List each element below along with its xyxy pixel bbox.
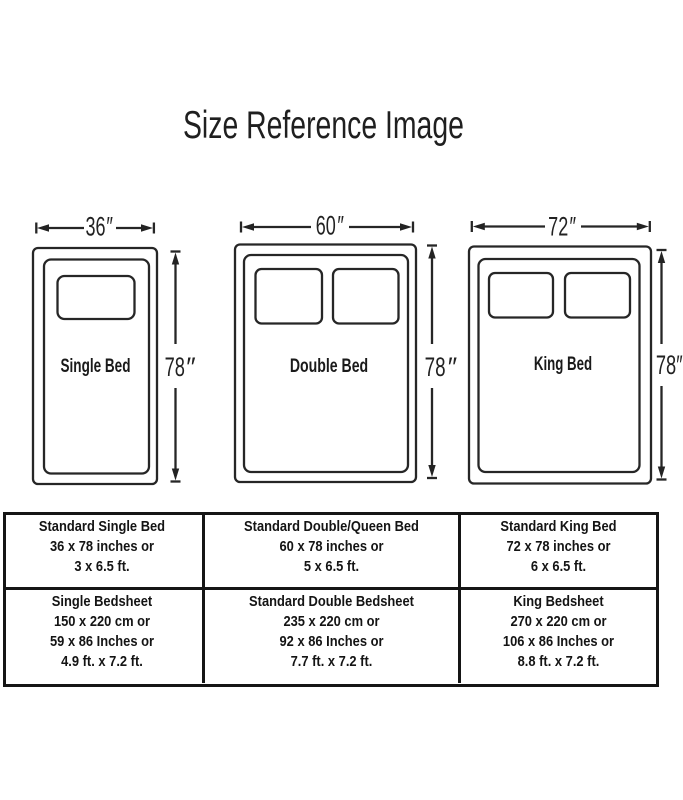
svg-text:King Bed: King Bed [534,354,592,375]
svg-text:78: 78 [165,352,185,382]
svg-text:78: 78 [425,352,446,382]
svg-text:″: ″ [186,352,195,382]
svg-text:″: ″ [337,210,344,240]
svg-text:″: ″ [448,352,457,382]
svg-text:Single Bed: Single Bed [60,356,130,377]
svg-text:36: 36 [85,211,105,241]
svg-text:″: ″ [676,349,682,379]
svg-text:Double Bed: Double Bed [290,355,368,377]
svg-text:78: 78 [656,350,676,380]
svg-text:72: 72 [548,211,568,241]
svg-text:″: ″ [106,211,113,241]
svg-text:″: ″ [570,211,577,241]
svg-text:60: 60 [316,210,336,240]
